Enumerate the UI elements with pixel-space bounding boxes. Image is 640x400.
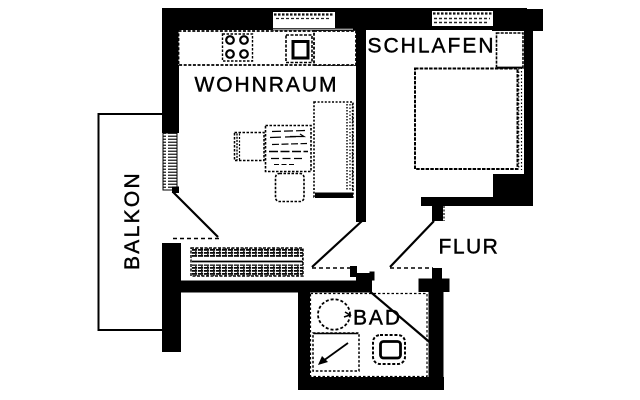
svg-text:FLUR: FLUR xyxy=(439,236,500,259)
svg-text:BAD: BAD xyxy=(353,307,402,330)
svg-text:WOHNRAUM: WOHNRAUM xyxy=(195,74,339,97)
svg-text:BALKON: BALKON xyxy=(121,171,144,270)
svg-text:SCHLAFEN: SCHLAFEN xyxy=(368,35,496,58)
